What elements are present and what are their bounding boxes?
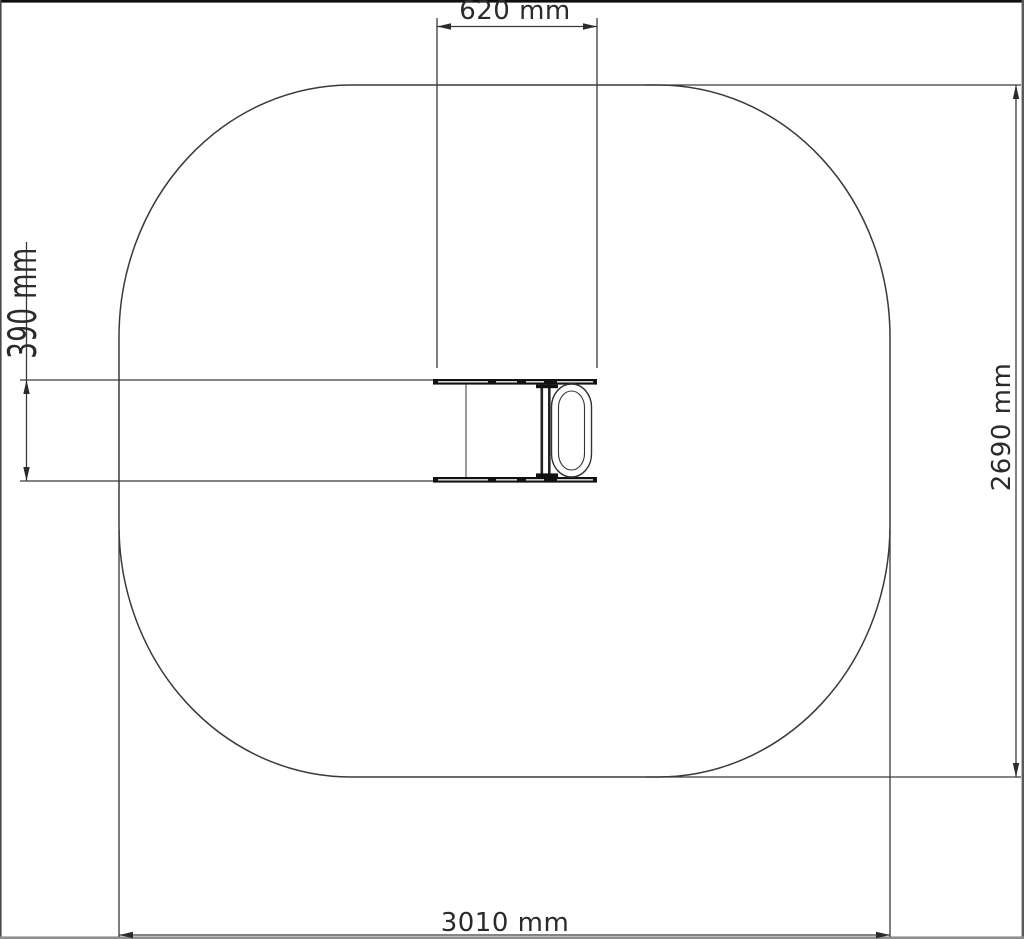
dimension-top	[437, 18, 597, 368]
mount-nub-top	[536, 385, 558, 389]
dimension-top-label: 620 mm	[459, 0, 571, 26]
cross-post-line-2	[548, 385, 551, 477]
arrow-down-icon	[23, 467, 29, 481]
arrow-left-icon	[437, 23, 451, 29]
handle-loop-inner	[559, 391, 585, 470]
arrow-right-icon	[583, 23, 597, 29]
mount-nub-bottom	[536, 473, 558, 477]
drawing-canvas: 620 mm 390 mm 2690 mm 3010 mm	[0, 0, 1024, 939]
left-border	[0, 0, 2, 939]
arrow-up-icon	[1013, 85, 1019, 99]
dimension-bottom	[119, 530, 890, 937]
dimension-left-label: 390 mm	[0, 247, 45, 358]
safety-zone-boundary	[119, 85, 890, 777]
dimension-left	[20, 242, 433, 481]
equipment-top-view	[433, 379, 597, 483]
arrow-up-icon	[23, 380, 29, 394]
dimension-right-label: 2690 mm	[987, 363, 1017, 492]
beam-slits	[438, 381, 593, 480]
dimension-drawing: 620 mm 390 mm 2690 mm 3010 mm	[0, 0, 1024, 939]
dimension-bottom-label: 3010 mm	[441, 908, 570, 938]
arrow-down-icon	[1013, 763, 1019, 777]
dimension-right	[645, 85, 1021, 777]
cross-post-line-1	[541, 385, 544, 477]
handle-loop-outer	[552, 384, 592, 477]
